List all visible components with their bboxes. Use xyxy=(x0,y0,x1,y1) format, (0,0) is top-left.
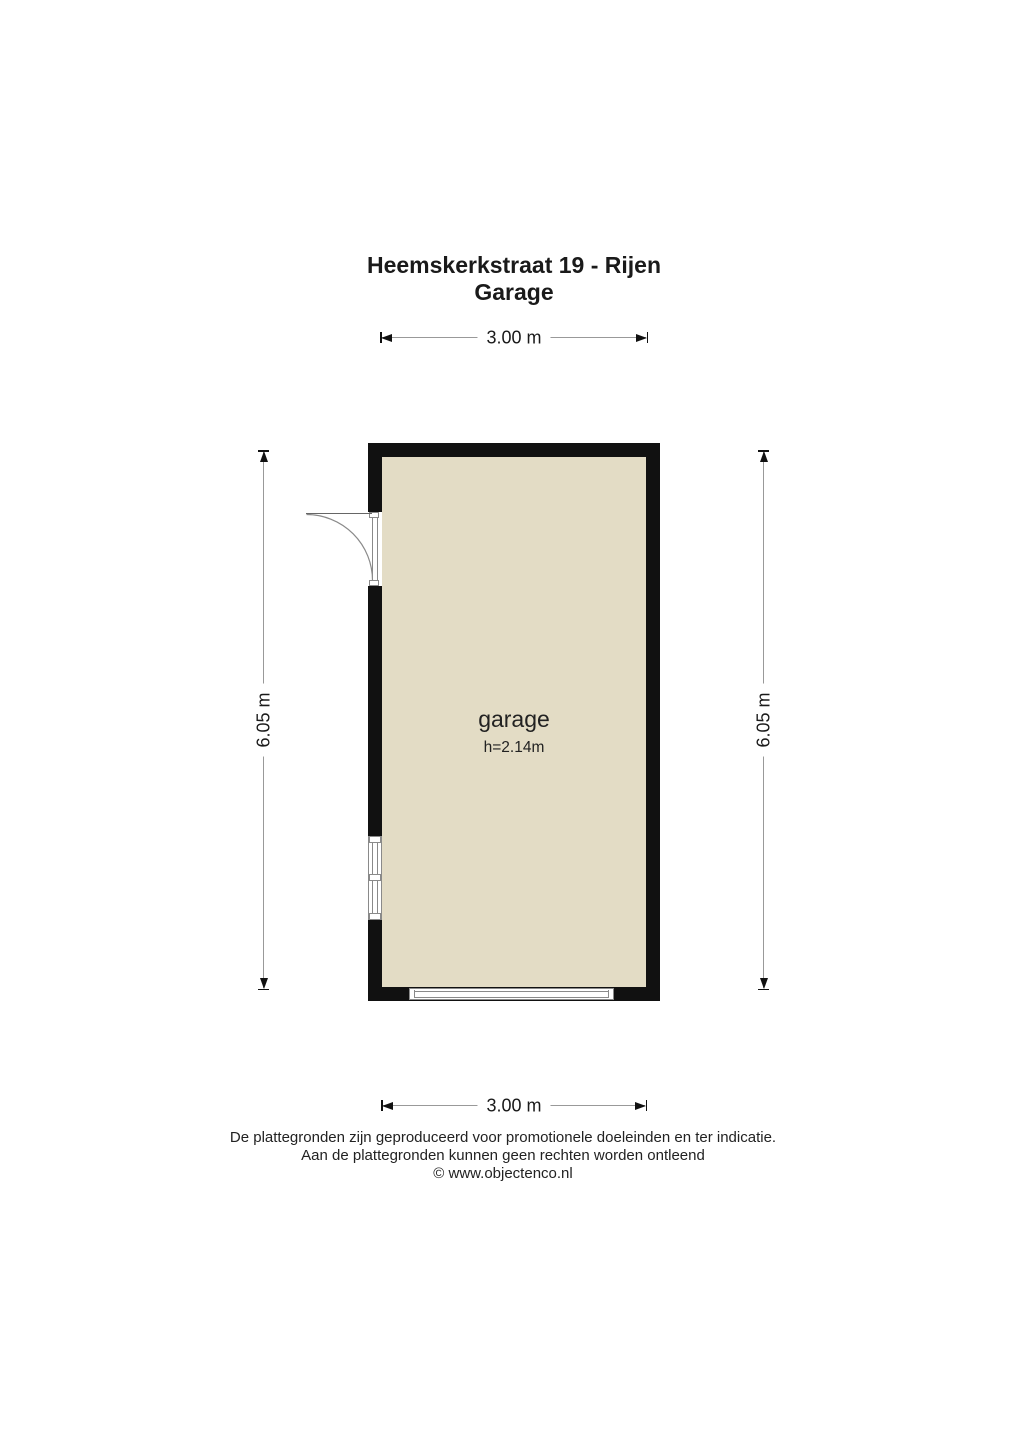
room-ceiling-height: h=2.14m xyxy=(382,739,646,757)
room-name: garage xyxy=(382,706,646,733)
garage-door-end xyxy=(608,990,609,998)
dimension-top: 3.00 m xyxy=(380,330,648,345)
floorplan-canvas: Heemskerkstraat 19 - Rijen Garage 3.00 m… xyxy=(0,0,1018,1440)
door-swing-arc-icon xyxy=(306,514,374,582)
arrow-down-icon xyxy=(260,978,268,989)
footer-line-1: De plattegronden zijn geproduceerd voor … xyxy=(3,1129,1003,1147)
footer-copyright: © www.objectenco.nl xyxy=(3,1165,1003,1183)
plan-title-address: Heemskerkstraat 19 - Rijen xyxy=(214,252,814,279)
dimension-label-right: 6.05 m xyxy=(753,683,774,756)
window-frame-bar xyxy=(369,836,381,843)
arrow-left-icon xyxy=(382,1102,393,1110)
arrow-right-icon xyxy=(635,1102,646,1110)
arrow-right-icon xyxy=(636,334,647,342)
dimension-label-bottom: 3.00 m xyxy=(477,1095,550,1116)
dimension-left: 6.05 m xyxy=(256,450,271,990)
dimension-right: 6.05 m xyxy=(756,450,771,990)
arrow-up-icon xyxy=(760,451,768,462)
footer-disclaimer: De plattegronden zijn geproduceerd voor … xyxy=(3,1129,1003,1183)
footer-line-2: Aan de plattegronden kunnen geen rechten… xyxy=(3,1147,1003,1165)
plan-title: Heemskerkstraat 19 - Rijen Garage xyxy=(214,252,814,306)
garage-door-slats xyxy=(415,991,608,998)
dimension-label-top: 3.00 m xyxy=(477,327,550,348)
arrow-down-icon xyxy=(760,978,768,989)
room-label: garage h=2.14m xyxy=(382,706,646,757)
garage-door-end xyxy=(414,990,415,998)
dimension-label-left: 6.05 m xyxy=(253,683,274,756)
window-frame-bar xyxy=(369,874,381,881)
arrow-left-icon xyxy=(381,334,392,342)
garage-door xyxy=(409,988,614,1000)
window-frame-bar xyxy=(369,913,381,920)
plan-title-room: Garage xyxy=(214,279,814,306)
arrow-up-icon xyxy=(260,451,268,462)
dimension-bottom: 3.00 m xyxy=(381,1098,647,1113)
window xyxy=(368,836,382,920)
